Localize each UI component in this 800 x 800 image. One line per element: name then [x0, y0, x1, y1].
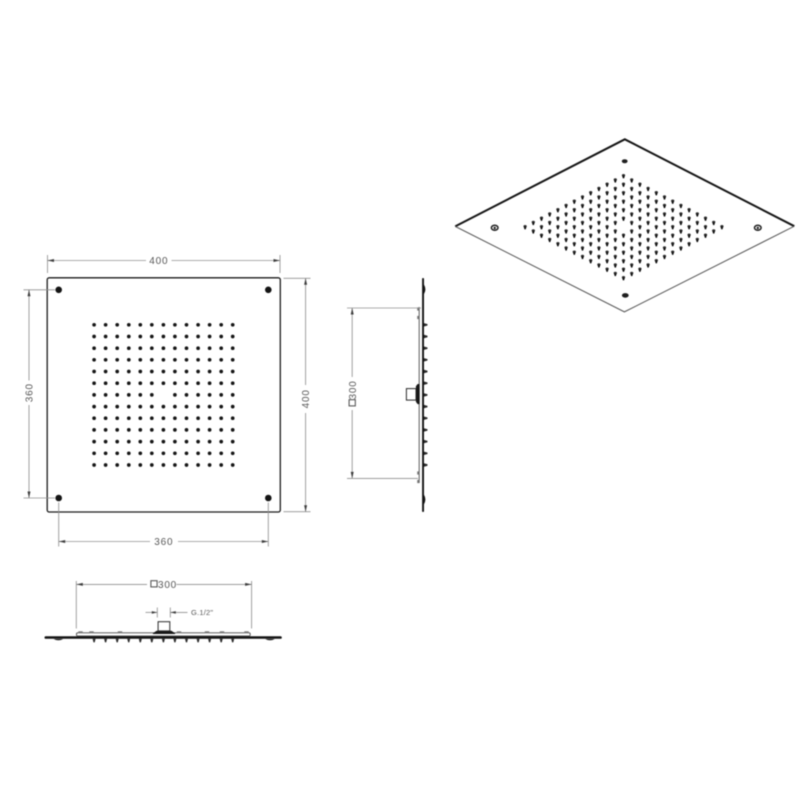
- svg-text:400: 400: [149, 256, 168, 267]
- svg-text:360: 360: [25, 383, 36, 402]
- svg-text:300: 300: [158, 580, 177, 591]
- svg-text:400: 400: [301, 389, 312, 408]
- svg-text:360: 360: [154, 537, 173, 548]
- svg-text:300: 300: [348, 380, 359, 399]
- svg-text:G.1/2": G.1/2": [191, 608, 213, 617]
